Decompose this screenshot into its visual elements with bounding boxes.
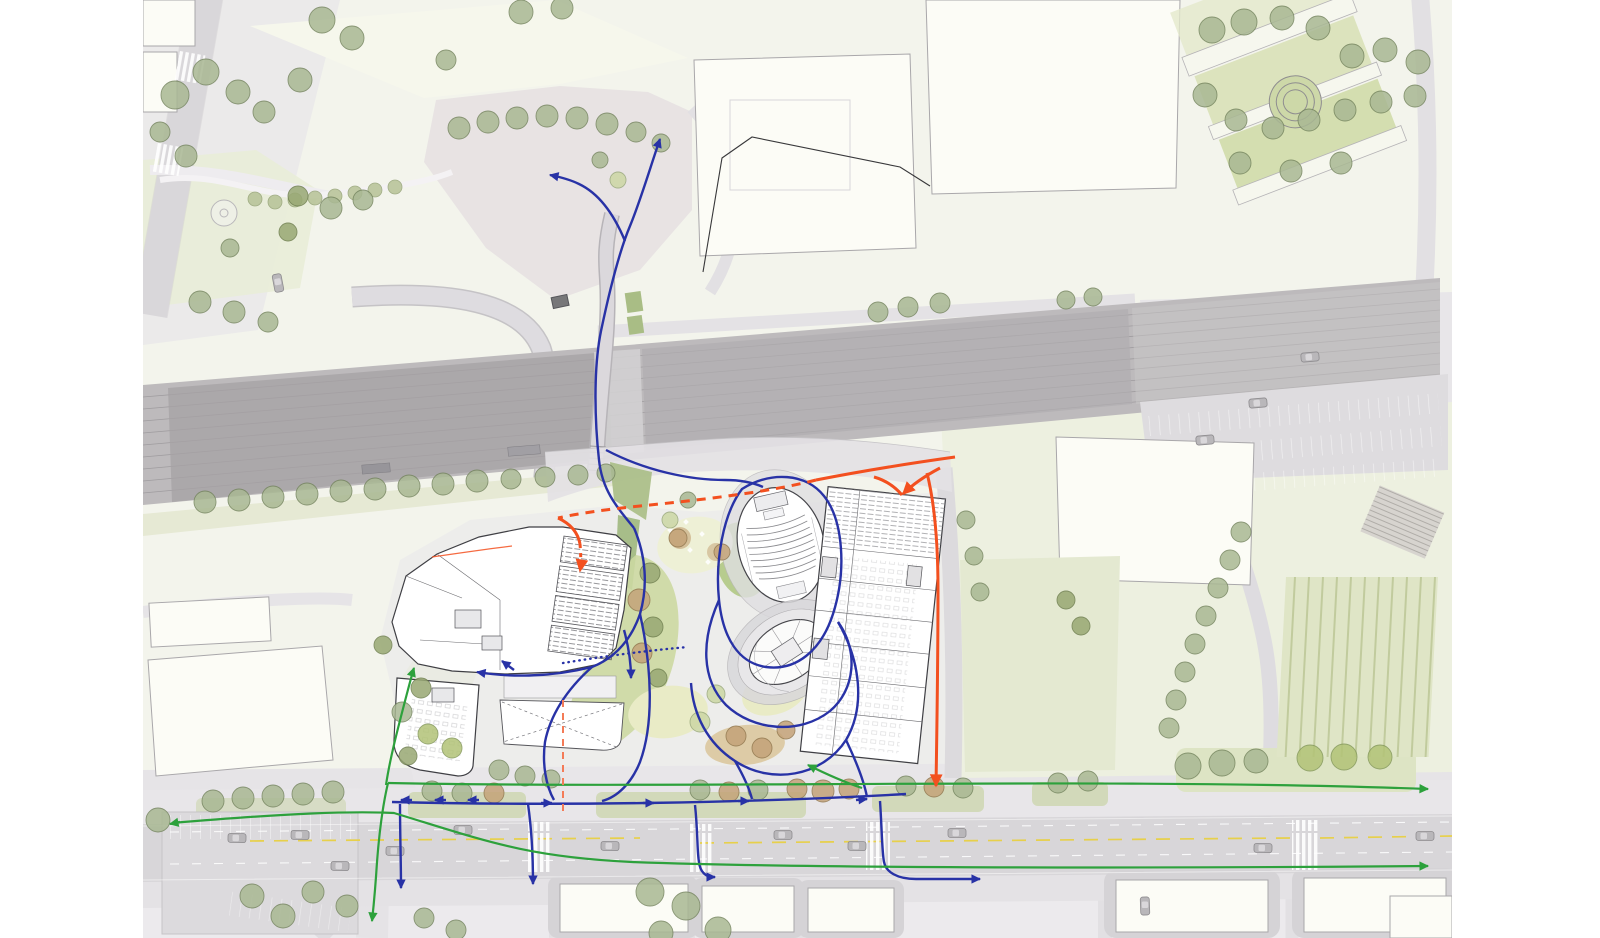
tree-icon (1270, 6, 1294, 30)
tree-icon (662, 512, 678, 528)
tree-icon (228, 489, 250, 511)
tree-icon (1297, 745, 1323, 771)
car-icon (228, 833, 246, 842)
tree-icon (649, 669, 667, 687)
tree-icon (965, 547, 983, 565)
tree-icon (1262, 117, 1284, 139)
car-icon (601, 841, 619, 850)
tree-icon (489, 760, 509, 780)
tree-icon (1057, 291, 1075, 309)
tree-icon (1159, 718, 1179, 738)
tree-icon (1244, 749, 1268, 773)
tree-icon (202, 790, 224, 812)
tree-icon (1175, 662, 1195, 682)
tree-icon (896, 776, 916, 796)
tree-icon (1280, 160, 1302, 182)
site-plan-canvas (0, 0, 1600, 938)
tree-icon (226, 80, 250, 104)
tree-icon (1208, 578, 1228, 598)
car-icon (1416, 832, 1434, 841)
building-north-b (926, 0, 1180, 194)
tree-icon (1057, 591, 1075, 609)
tree-icon (193, 59, 219, 85)
tree-icon (1406, 50, 1430, 74)
tree-icon (714, 544, 730, 560)
tree-icon (501, 469, 521, 489)
tree-icon (643, 617, 663, 637)
tree-icon (726, 726, 746, 746)
tree-icon (690, 780, 710, 800)
crosswalk-3 (866, 822, 890, 870)
tree-icon (146, 808, 170, 832)
car-icon (1249, 398, 1268, 409)
tree-icon (566, 107, 588, 129)
car-icon (1254, 843, 1272, 852)
tree-icon (240, 884, 264, 908)
car-icon (774, 831, 792, 840)
tree-icon (432, 473, 454, 495)
tree-icon (636, 878, 664, 906)
tree-icon (258, 312, 278, 332)
tree-icon (262, 785, 284, 807)
tree-icon (353, 190, 373, 210)
tree-icon (1340, 44, 1364, 68)
tree-icon (626, 122, 646, 142)
tree-icon (1193, 83, 1217, 107)
site-plan-page (0, 0, 1600, 938)
tree-icon (1330, 152, 1352, 174)
car-icon (848, 841, 866, 850)
tree-icon (1209, 750, 1235, 776)
tree-icon (340, 26, 364, 50)
tree-icon (1331, 744, 1357, 770)
tree-icon (484, 783, 504, 803)
tree-icon (752, 738, 772, 758)
tree-icon (1334, 99, 1356, 121)
tree-icon (446, 920, 466, 938)
tree-icon (150, 122, 170, 142)
tree-icon (320, 197, 342, 219)
tree-icon (610, 172, 626, 188)
tree-icon (288, 186, 308, 206)
tree-icon (1404, 85, 1426, 107)
tree-icon (672, 892, 700, 920)
tree-icon (640, 563, 660, 583)
tree-icon (551, 0, 573, 19)
tree-icon (596, 113, 618, 135)
tree-icon (568, 465, 588, 485)
tree-icon (1196, 606, 1216, 626)
tree-icon (898, 297, 918, 317)
tree-icon (477, 111, 499, 133)
car-icon (1140, 897, 1150, 915)
tree-icon (175, 145, 197, 167)
tree-icon (1166, 690, 1186, 710)
building-southwest (148, 646, 333, 776)
flow-pedestrian-crossing-a (400, 804, 401, 888)
tree-icon (971, 583, 989, 601)
tree-icon (777, 721, 795, 739)
tree-icon (411, 678, 431, 698)
tree-icon (1370, 91, 1392, 113)
tree-icon (374, 636, 392, 654)
tree-icon (1306, 16, 1330, 40)
tree-icon (1231, 9, 1257, 35)
tree-icon (535, 467, 555, 487)
tree-icon (364, 478, 386, 500)
allotment-field (1277, 577, 1438, 757)
tree-icon (1298, 109, 1320, 131)
tree-icon (1373, 38, 1397, 62)
tree-icon (1225, 109, 1247, 131)
tree-icon (1220, 550, 1240, 570)
tree-icon (536, 105, 558, 127)
tree-icon (279, 223, 297, 241)
tree-icon (232, 787, 254, 809)
tree-icon (330, 480, 352, 502)
tree-icon (398, 475, 420, 497)
tree-icon (253, 101, 275, 123)
tree-icon (221, 239, 239, 257)
tree-icon (448, 117, 470, 139)
tree-icon (189, 291, 211, 313)
tree-icon (336, 895, 358, 917)
car-icon (948, 829, 966, 838)
tree-icon (652, 134, 670, 152)
tree-icon (1078, 771, 1098, 791)
tree-icon (296, 483, 318, 505)
building-north-a (694, 54, 916, 256)
tree-icon (1185, 634, 1205, 654)
tree-icon (930, 293, 950, 313)
tree-icon (592, 152, 608, 168)
tree-icon (868, 302, 888, 322)
tree-icon (414, 908, 434, 928)
tree-icon (466, 470, 488, 492)
tree-icon (302, 881, 324, 903)
tree-icon (442, 738, 462, 758)
flow-pedestrian-prom-arrow-r4 (856, 799, 867, 800)
tree-icon (1084, 288, 1102, 306)
tree-icon (628, 589, 650, 611)
park-pond (211, 200, 237, 226)
tree-icon (509, 0, 533, 24)
tree-icon (309, 7, 335, 33)
tree-icon (262, 486, 284, 508)
tree-icon (506, 107, 528, 129)
tree-icon (223, 301, 245, 323)
tree-icon (957, 511, 975, 529)
tree-icon (322, 781, 344, 803)
site-east-road (944, 468, 954, 778)
tree-icon (953, 778, 973, 798)
tree-icon (292, 783, 314, 805)
tree-icon (161, 81, 189, 109)
tree-icon (787, 779, 807, 799)
tree-icon (194, 491, 216, 513)
tree-icon (924, 777, 944, 797)
car-icon (291, 830, 309, 839)
white-margin-left (0, 0, 143, 938)
tree-icon (515, 766, 535, 786)
tree-icon (288, 68, 312, 92)
crosswalk-4 (1292, 820, 1318, 870)
tree-icon (1175, 753, 1201, 779)
tree-icon (1229, 152, 1251, 174)
tree-icon (1072, 617, 1090, 635)
tree-icon (1231, 522, 1251, 542)
tree-icon (399, 747, 417, 765)
tree-icon (705, 917, 731, 938)
train-on-tracks (362, 463, 391, 474)
white-margin-right (1452, 0, 1600, 938)
car-icon (1196, 435, 1215, 446)
tree-icon (1199, 17, 1225, 43)
car-icon (331, 861, 349, 870)
tree-icon (436, 50, 456, 70)
tree-icon (271, 904, 295, 928)
car-icon (1301, 352, 1320, 363)
tree-icon (669, 529, 687, 547)
tree-icon (418, 724, 438, 744)
tree-icon (1368, 745, 1392, 769)
